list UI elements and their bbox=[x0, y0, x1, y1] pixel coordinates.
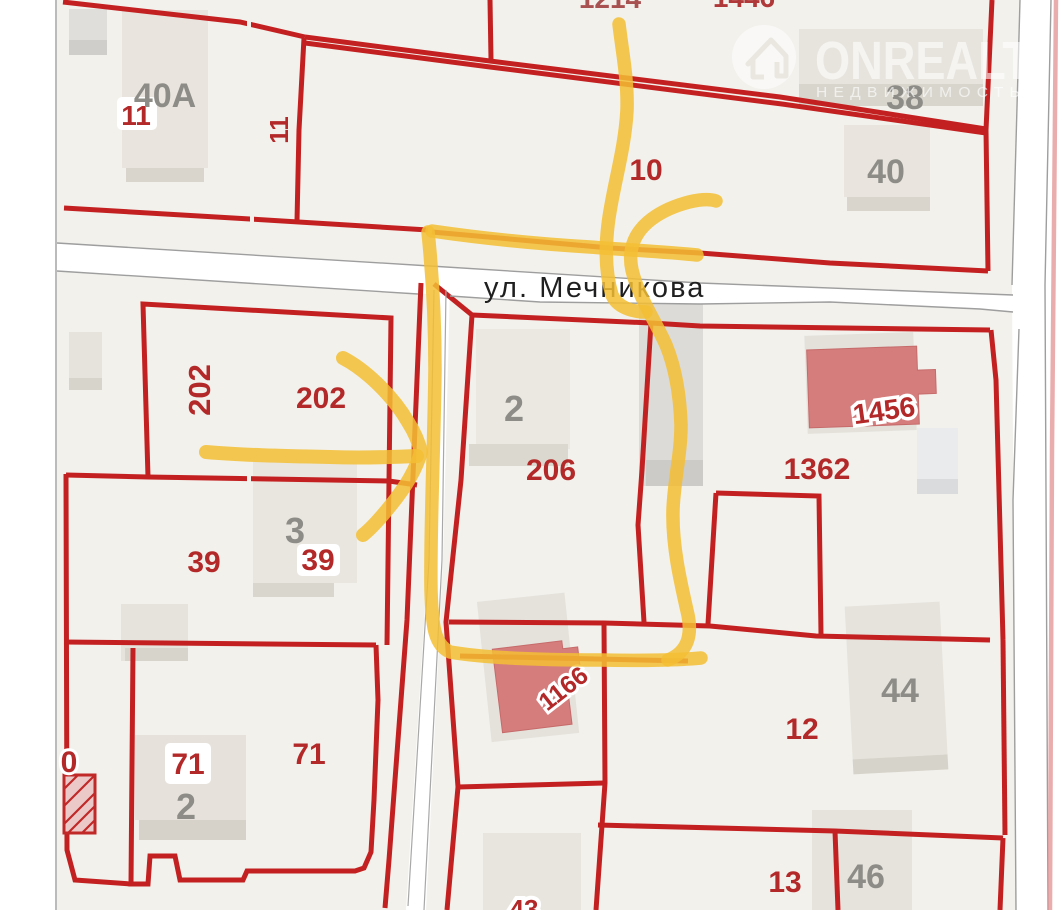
svg-text:ул. Мечникова: ул. Мечникова bbox=[484, 272, 706, 304]
svg-text:2: 2 bbox=[504, 388, 524, 429]
svg-text:1446: 1446 bbox=[713, 0, 775, 13]
svg-text:202: 202 bbox=[182, 364, 217, 416]
svg-text:ONREALT: ONREALT bbox=[815, 31, 1030, 91]
svg-text:12: 12 bbox=[785, 713, 818, 746]
svg-text:46: 46 bbox=[847, 858, 885, 896]
svg-text:43: 43 bbox=[510, 894, 539, 910]
svg-text:40: 40 bbox=[867, 153, 905, 191]
svg-text:40А: 40А bbox=[134, 77, 196, 115]
svg-text:71: 71 bbox=[171, 748, 204, 781]
svg-text:11: 11 bbox=[264, 116, 294, 144]
svg-text:0: 0 bbox=[61, 746, 78, 779]
svg-text:39: 39 bbox=[187, 546, 220, 579]
svg-text:10: 10 bbox=[629, 154, 662, 187]
svg-text:44: 44 bbox=[881, 672, 919, 710]
svg-text:НЕДВИЖИМОСТЬ: НЕДВИЖИМОСТЬ bbox=[816, 84, 1026, 101]
svg-text:1362: 1362 bbox=[784, 453, 851, 486]
svg-text:202: 202 bbox=[296, 382, 346, 415]
svg-text:71: 71 bbox=[292, 738, 325, 771]
svg-text:39: 39 bbox=[301, 544, 334, 577]
svg-text:1214: 1214 bbox=[579, 0, 642, 14]
svg-text:2: 2 bbox=[176, 786, 196, 827]
svg-text:13: 13 bbox=[768, 866, 801, 899]
svg-text:206: 206 bbox=[526, 454, 576, 487]
